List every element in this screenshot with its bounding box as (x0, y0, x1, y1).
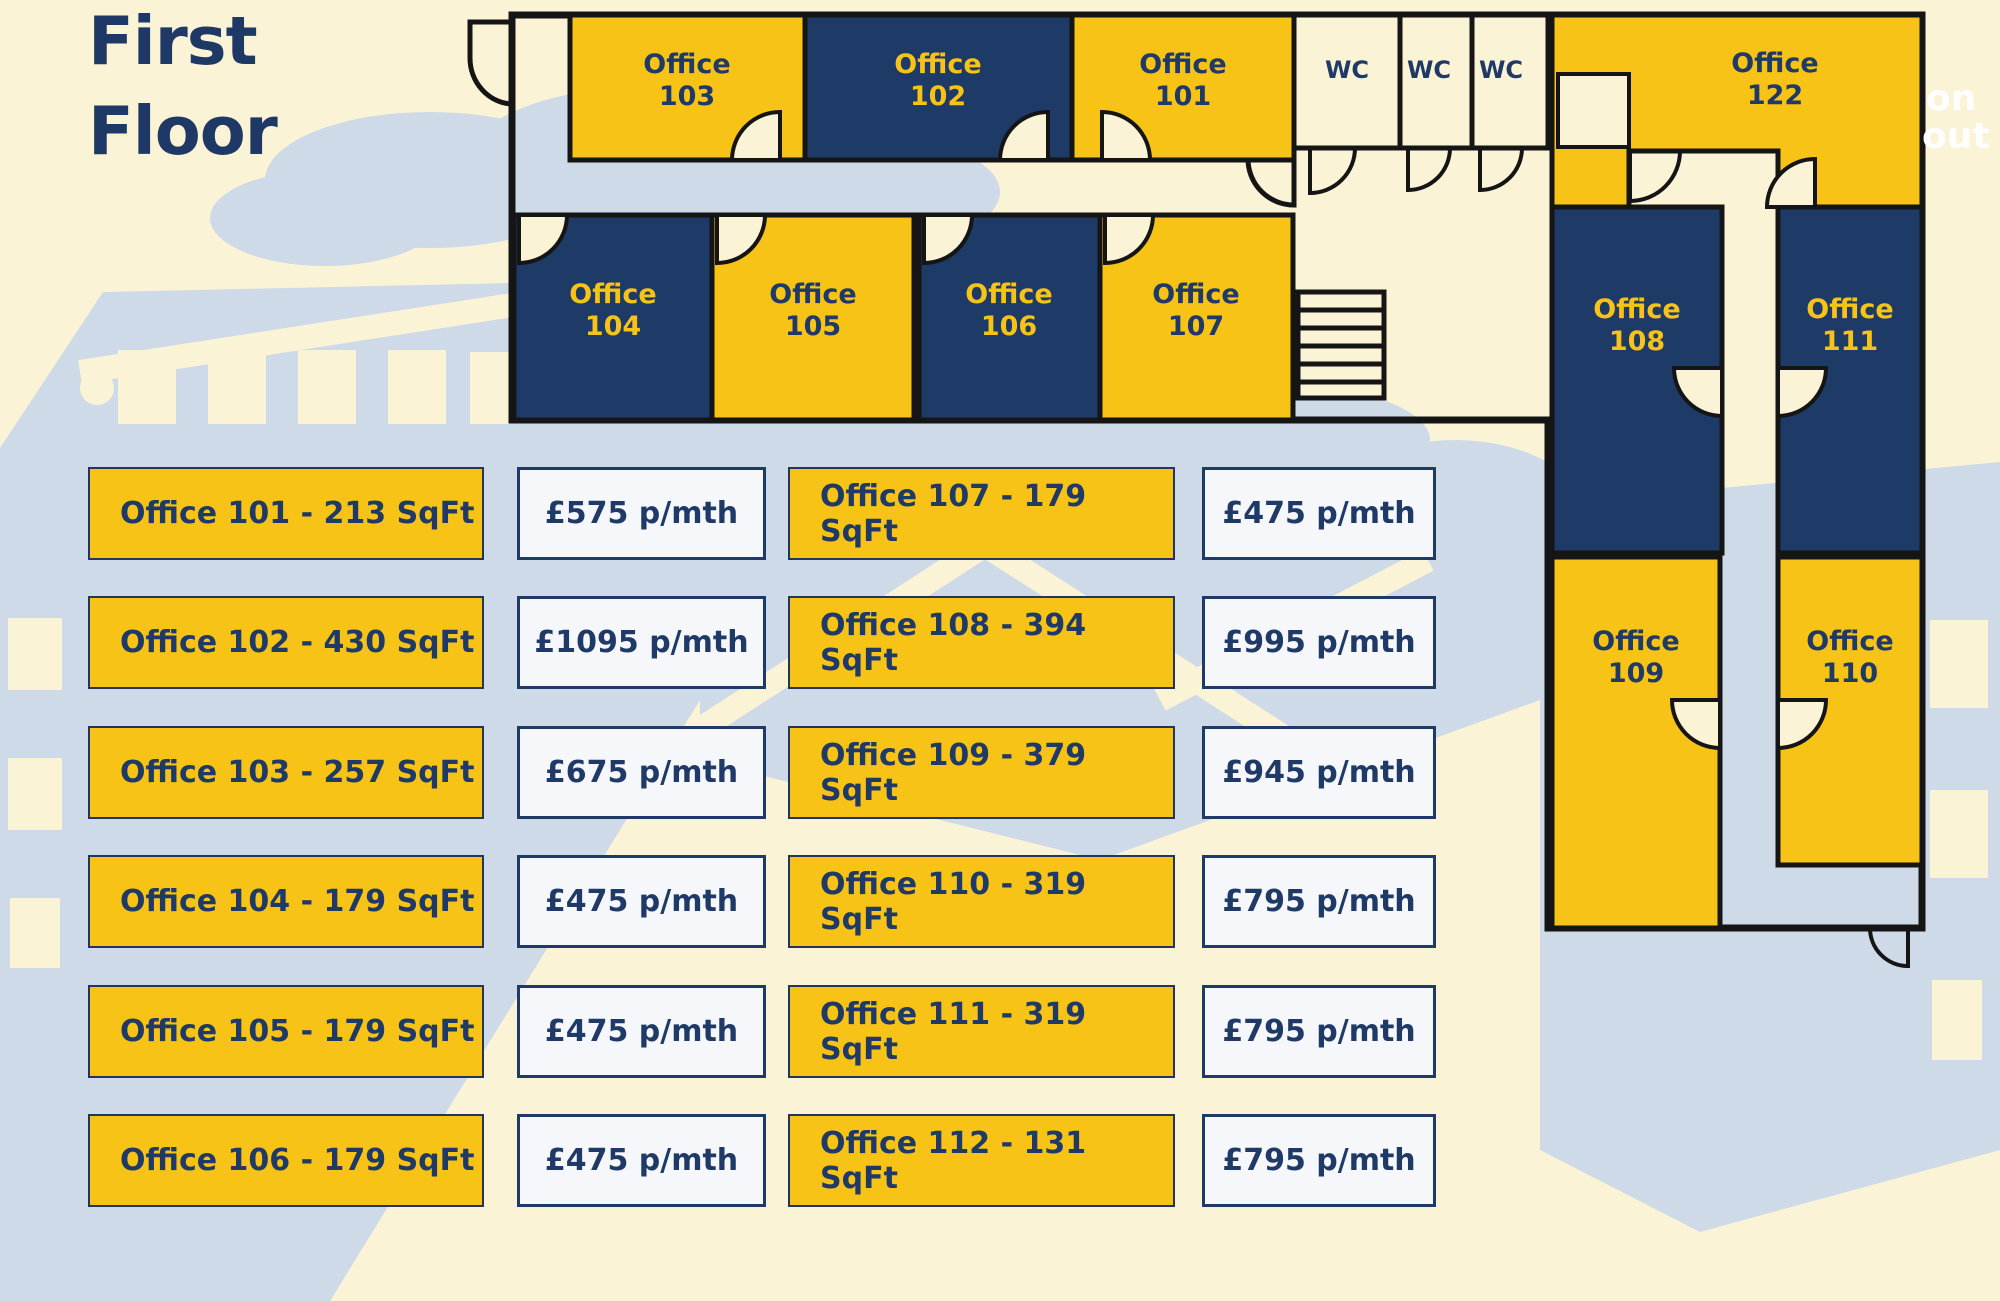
closet (1558, 74, 1629, 147)
entrance-door (470, 22, 512, 104)
price-row: Office 101 - 213 SqFt £575 p/mth Office … (0, 467, 2000, 560)
price-box: £795 p/mth (1202, 855, 1436, 948)
room-label: Office (1806, 294, 1893, 325)
room-label: Office (1139, 49, 1226, 80)
office-size-box: Office 101 - 213 SqFt (88, 467, 484, 560)
office-size-box: Office 112 - 131 SqFt (788, 1114, 1175, 1207)
price-box: £675 p/mth (517, 726, 766, 819)
room-office-122: Office 122 (1552, 15, 1922, 207)
room-number: 111 (1822, 326, 1878, 357)
office-size-box: Office 109 - 379 SqFt (788, 726, 1175, 819)
edge-text-fragment: out (1922, 116, 1990, 157)
room-number: 105 (785, 311, 841, 342)
room-number: 107 (1168, 311, 1224, 342)
room-number: 122 (1747, 80, 1803, 111)
room-number: 102 (910, 81, 966, 112)
office-size-box: Office 110 - 319 SqFt (788, 855, 1175, 948)
price-box: £475 p/mth (517, 985, 766, 1078)
room-number: 106 (981, 311, 1037, 342)
edge-caption: on out (1922, 78, 1990, 157)
room-label: Office (1731, 48, 1818, 79)
price-box: £475 p/mth (1202, 467, 1436, 560)
room-label: Office (894, 49, 981, 80)
price-box: £475 p/mth (517, 855, 766, 948)
price-box: £795 p/mth (1202, 1114, 1436, 1207)
room-wc-2: WC (1400, 15, 1472, 148)
office-size-box: Office 105 - 179 SqFt (88, 985, 484, 1078)
price-row: Office 105 - 179 SqFt £475 p/mth Office … (0, 985, 2000, 1078)
edge-text-fragment: on (1926, 78, 1976, 119)
office-size-box: Office 107 - 179 SqFt (788, 467, 1175, 560)
office-size-box: Office 111 - 319 SqFt (788, 985, 1175, 1078)
page-title-line1: First (88, 0, 277, 86)
office-size-box: Office 103 - 257 SqFt (88, 726, 484, 819)
room-label: Office (1152, 279, 1239, 310)
price-box: £1095 p/mth (517, 596, 766, 689)
room-number: 101 (1155, 81, 1211, 112)
page-title: First Floor (88, 0, 277, 176)
price-box: £575 p/mth (517, 467, 766, 560)
page-title-line2: Floor (88, 86, 277, 176)
price-box: £475 p/mth (517, 1114, 766, 1207)
price-box: £945 p/mth (1202, 726, 1436, 819)
price-row: Office 106 - 179 SqFt £475 p/mth Office … (0, 1114, 2000, 1207)
price-row: Office 103 - 257 SqFt £675 p/mth Office … (0, 726, 2000, 819)
room-label: Office (965, 279, 1052, 310)
office-size-box: Office 106 - 179 SqFt (88, 1114, 484, 1207)
price-box: £995 p/mth (1202, 596, 1436, 689)
wc-label: WC (1479, 56, 1523, 84)
office-size-box: Office 108 - 394 SqFt (788, 596, 1175, 689)
office-size-box: Office 104 - 179 SqFt (88, 855, 484, 948)
room-label: Office (1593, 294, 1680, 325)
office-size-box: Office 102 - 430 SqFt (88, 596, 484, 689)
price-row: Office 104 - 179 SqFt £475 p/mth Office … (0, 855, 2000, 948)
room-label: Office (569, 279, 656, 310)
room-wc-1: WC (1294, 15, 1400, 148)
room-number: 108 (1609, 326, 1665, 357)
wc-label: WC (1325, 56, 1369, 84)
room-number: 104 (585, 311, 641, 342)
price-row: Office 102 - 430 SqFt £1095 p/mth Office… (0, 596, 2000, 689)
stairs (1298, 292, 1384, 398)
room-wc-3: WC (1472, 15, 1548, 148)
room-number: 103 (659, 81, 715, 112)
wc-label: WC (1407, 56, 1451, 84)
room-label: Office (643, 49, 730, 80)
room-label: Office (769, 279, 856, 310)
price-box: £795 p/mth (1202, 985, 1436, 1078)
